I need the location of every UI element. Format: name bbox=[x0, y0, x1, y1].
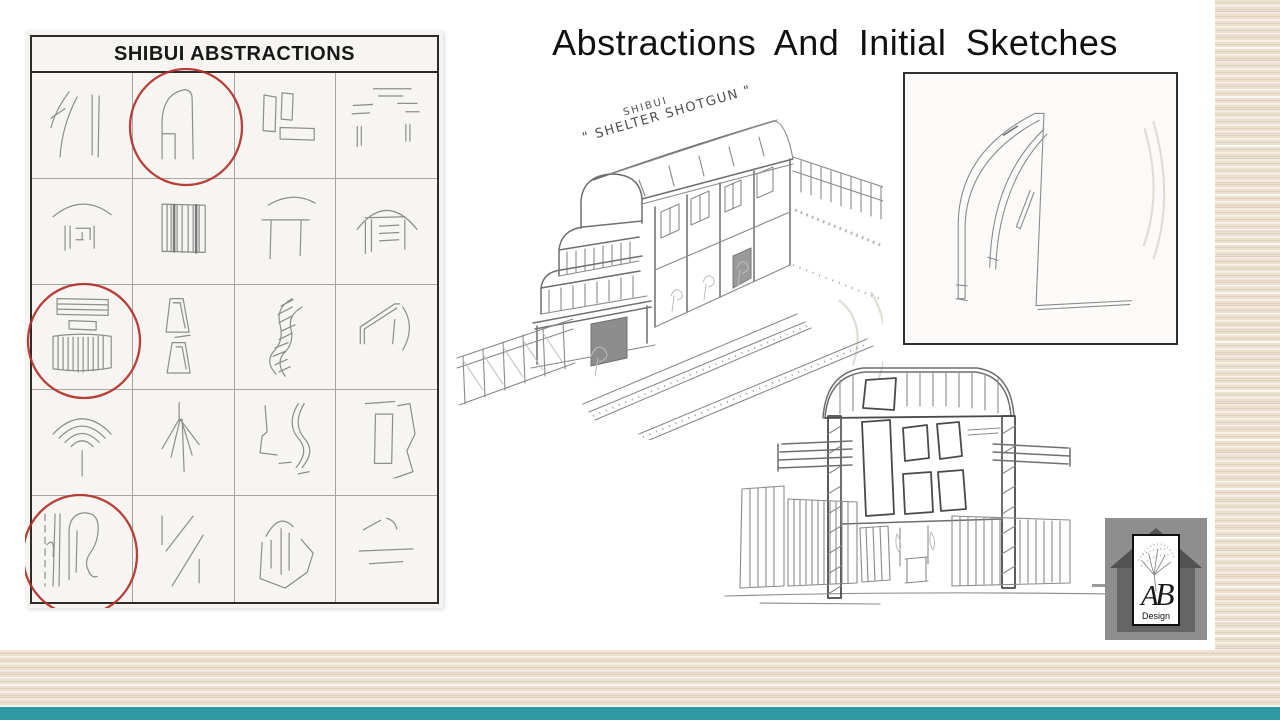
abstraction-cell-r4c1 bbox=[32, 390, 133, 496]
abstraction-grid-title: SHIBUI ABSTRACTIONS bbox=[32, 37, 437, 73]
abstraction-cell-r1c2-arch bbox=[133, 73, 234, 179]
presentation-slide: Abstractions And Initial Sketches SHIBUI… bbox=[0, 0, 1280, 720]
theme-accent-bar bbox=[0, 707, 1280, 720]
abstraction-cell-r5c2 bbox=[133, 496, 234, 602]
abstraction-cell-r3c2 bbox=[133, 285, 234, 391]
abstraction-cell-r2c4 bbox=[336, 179, 437, 285]
abstraction-cell-r4c3 bbox=[235, 390, 336, 496]
abstraction-cell-r4c4 bbox=[336, 390, 437, 496]
abstraction-cell-r5c4 bbox=[336, 496, 437, 602]
front-elevation-sketch bbox=[700, 356, 1120, 642]
abstraction-grid-table: SHIBUI ABSTRACTIONS bbox=[30, 35, 439, 604]
abstraction-cell-r3c4 bbox=[336, 285, 437, 391]
arch-detail-sketch bbox=[903, 72, 1178, 345]
abstraction-cell-r4c2 bbox=[133, 390, 234, 496]
abstraction-cell-r3c1 bbox=[32, 285, 133, 391]
abstraction-cell-r5c1 bbox=[32, 496, 133, 602]
ab-design-logo: A B Design bbox=[1105, 518, 1207, 640]
abstraction-cell-r2c1 bbox=[32, 179, 133, 285]
abstraction-cell-r1c3 bbox=[235, 73, 336, 179]
abstraction-cell-r2c2 bbox=[133, 179, 234, 285]
logo-card: A B Design bbox=[1132, 534, 1180, 626]
abstraction-cell-r3c3 bbox=[235, 285, 336, 391]
abstraction-cell-r1c1 bbox=[32, 73, 133, 179]
slide-title: Abstractions And Initial Sketches bbox=[450, 22, 1220, 64]
monogram-initial-b: B bbox=[1155, 578, 1175, 610]
abstraction-cell-r1c4 bbox=[336, 73, 437, 179]
logo-caption: Design bbox=[1134, 611, 1178, 621]
logo-pointer-dash bbox=[1092, 584, 1105, 587]
abstraction-cell-r5c3 bbox=[235, 496, 336, 602]
abstraction-cell-r2c3 bbox=[235, 179, 336, 285]
shibui-abstractions-chart: SHIBUI ABSTRACTIONS bbox=[25, 30, 443, 608]
